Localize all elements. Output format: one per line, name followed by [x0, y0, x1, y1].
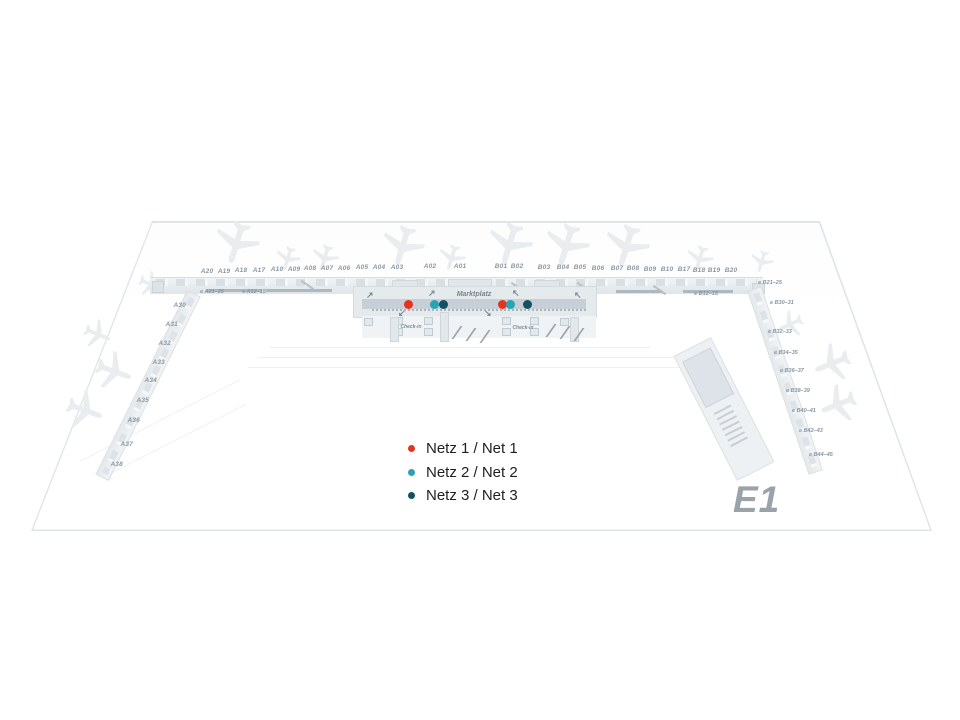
gate-label: A04 [373, 264, 386, 271]
checkin-counter [502, 317, 511, 325]
gate-label: B04 [557, 264, 570, 271]
gate-label: A01 [454, 263, 467, 270]
escalator-arrow-icon: ↗ [366, 291, 374, 300]
gate-label: A08 [304, 265, 317, 272]
gate-label: B19 [708, 267, 721, 274]
gate-label: B18 [693, 267, 706, 274]
legend-item-net3: Netz 3 / Net 3 [408, 484, 518, 507]
egate-label: e B44–45 [809, 452, 833, 458]
walkway-bar [616, 290, 662, 293]
escalator-arrow-icon: ↗ [428, 289, 436, 298]
egate-label: e B42–43 [799, 428, 823, 434]
gate-label: B10 [661, 266, 674, 273]
gate-label: A30 [173, 302, 186, 309]
egate-label: e B30–31 [770, 300, 794, 306]
gate-label: B06 [592, 265, 605, 272]
escalator-arrow-icon: ↖ [512, 289, 520, 298]
gate-label: A09 [288, 266, 301, 273]
network2-dot [430, 300, 439, 309]
gate-label: B07 [611, 265, 624, 272]
gate-label: B05 [574, 264, 587, 271]
gate-label: A38 [110, 461, 123, 468]
gate-label: B03 [538, 264, 551, 271]
checkin-counter [364, 318, 373, 326]
satellite-stairs [714, 404, 749, 448]
gate-label: A19 [218, 268, 231, 275]
net2-dot-icon [408, 469, 415, 476]
legend-label: Netz 3 / Net 3 [426, 487, 518, 504]
checkin-label-right: Check-in [508, 325, 538, 331]
egate-label: e A21–25 [200, 289, 224, 295]
stair-tower [390, 317, 399, 342]
terminal-map: Marktplatz ↗ ↗ ↖ ↖ ↙ ↘ Check-in Check-in [0, 0, 960, 720]
gate-label: A37 [120, 441, 133, 448]
gate-label: B01 [495, 263, 508, 270]
egate-label: e B40–41 [792, 408, 816, 414]
egate-label: e B38–39 [786, 388, 810, 394]
floor-label: E1 [733, 479, 780, 521]
network2-dot [506, 300, 515, 309]
walkway-bar [266, 289, 332, 292]
network3-dot [439, 300, 448, 309]
egate-label: e B36–37 [780, 368, 804, 374]
egate-label: e B32–33 [768, 329, 792, 335]
legend-item-net1: Netz 1 / Net 1 [408, 437, 518, 460]
gate-label: A35 [136, 397, 149, 404]
gate-label: A06 [338, 265, 351, 272]
gate-label: A20 [201, 268, 214, 275]
gate-label: B02 [511, 263, 524, 270]
gate-label: A33 [152, 359, 165, 366]
net3-dot-icon [408, 492, 415, 499]
marktplatz-label: Marktplatz [440, 291, 508, 298]
escalator-arrow-icon: ↖ [574, 291, 582, 300]
apron-line [270, 347, 650, 348]
net1-dot-icon [408, 445, 415, 452]
gate-label: A34 [144, 377, 157, 384]
egate-label: e B21–25 [758, 280, 782, 286]
stair-tower [440, 312, 449, 342]
egate-label: e A12–15 [242, 289, 266, 295]
apron-line [258, 357, 678, 358]
legend: Netz 1 / Net 1 Netz 2 / Net 2 Netz 3 / N… [408, 437, 518, 507]
gate-label: A32 [158, 340, 171, 347]
legend-label: Netz 1 / Net 1 [426, 440, 518, 457]
network3-dot [523, 300, 532, 309]
egate-label: e B12–15 [694, 291, 718, 297]
checkin-label-left: Check-in [396, 324, 426, 330]
gate-label: A05 [356, 264, 369, 271]
gate-label: A03 [391, 264, 404, 271]
escalator-arrow-icon: ↘ [484, 309, 492, 318]
network1-dot [404, 300, 413, 309]
terminal-corner-structure [152, 281, 164, 293]
egate-label: e B34–35 [774, 350, 798, 356]
gate-label: A10 [271, 266, 284, 273]
marktplatz-corridor [362, 299, 586, 309]
legend-label: Netz 2 / Net 2 [426, 464, 518, 481]
gate-label: A31 [165, 321, 178, 328]
legend-item-net2: Netz 2 / Net 2 [408, 460, 518, 483]
gate-label: A36 [127, 417, 140, 424]
gate-label: A07 [321, 265, 334, 272]
checkin-counter [530, 317, 539, 325]
gate-label: B09 [644, 266, 657, 273]
gate-label: B20 [725, 267, 738, 274]
gate-label: B08 [627, 265, 640, 272]
gate-label: B17 [678, 266, 691, 273]
apron-line [248, 367, 698, 368]
gate-label: A17 [253, 267, 266, 274]
gate-label: A02 [424, 263, 437, 270]
gate-label: A18 [235, 267, 248, 274]
